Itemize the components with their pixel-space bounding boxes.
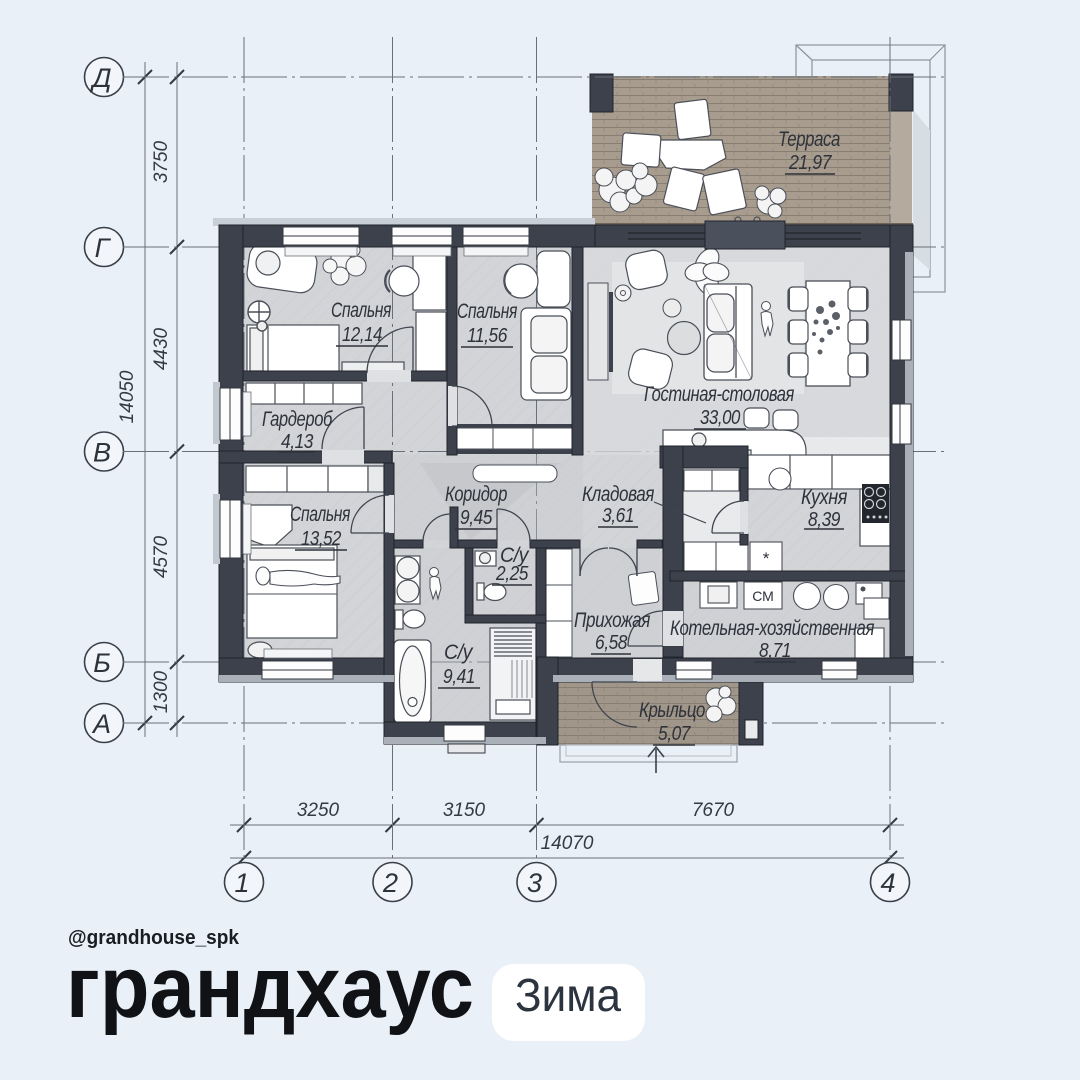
svg-text:33,00: 33,00 <box>700 407 740 429</box>
svg-text:8,71: 8,71 <box>759 640 791 662</box>
svg-text:3750: 3750 <box>151 140 172 183</box>
svg-text:Спальня: Спальня <box>290 503 350 526</box>
svg-text:14050: 14050 <box>117 370 138 423</box>
svg-text:Спальня: Спальня <box>331 299 391 322</box>
svg-text:9,41: 9,41 <box>443 666 475 688</box>
svg-text:1300: 1300 <box>151 670 172 713</box>
svg-text:Зима: Зима <box>515 969 621 1021</box>
svg-text:12,14: 12,14 <box>342 324 382 346</box>
svg-text:С/у: С/у <box>444 641 474 664</box>
svg-text:грандхаус: грандхаус <box>66 939 474 1036</box>
svg-text:11,56: 11,56 <box>467 325 508 347</box>
svg-text:8,39: 8,39 <box>808 509 840 531</box>
svg-text:3250: 3250 <box>297 800 340 821</box>
svg-text:4430: 4430 <box>151 327 172 370</box>
svg-text:2: 2 <box>382 868 398 898</box>
svg-text:4570: 4570 <box>151 535 172 578</box>
svg-text:Терраса: Терраса <box>778 128 840 151</box>
svg-text:Прихожая: Прихожая <box>574 609 650 632</box>
svg-text:*: * <box>763 549 770 568</box>
svg-text:Г: Г <box>95 233 112 263</box>
svg-text:1: 1 <box>234 868 249 898</box>
svg-text:Котельная-хозяйственная: Котельная-хозяйственная <box>670 617 874 640</box>
svg-text:Б: Б <box>93 648 111 678</box>
svg-text:13,52: 13,52 <box>301 528 341 550</box>
svg-text:3150: 3150 <box>443 800 486 821</box>
svg-text:2,25: 2,25 <box>495 563 529 585</box>
svg-text:Кухня: Кухня <box>801 486 847 509</box>
svg-text:5,07: 5,07 <box>658 723 691 745</box>
svg-text:Гардероб: Гардероб <box>262 408 333 431</box>
svg-text:9,45: 9,45 <box>460 507 493 529</box>
svg-text:7670: 7670 <box>692 800 735 821</box>
svg-text:6,58: 6,58 <box>595 632 627 654</box>
svg-text:Спальня: Спальня <box>457 300 517 323</box>
svg-text:Кладовая: Кладовая <box>582 483 654 506</box>
svg-text:Д: Д <box>89 63 111 93</box>
svg-text:Коридор: Коридор <box>445 483 507 506</box>
svg-text:А: А <box>91 709 111 739</box>
svg-text:4: 4 <box>880 868 895 898</box>
svg-text:14070: 14070 <box>541 833 594 854</box>
svg-text:Крыльцо: Крыльцо <box>639 699 706 722</box>
svg-text:СМ: СМ <box>752 588 774 604</box>
svg-text:3,61: 3,61 <box>602 505 634 527</box>
svg-text:Гостиная-столовая: Гостиная-столовая <box>644 383 794 406</box>
svg-text:В: В <box>93 438 111 468</box>
svg-text:4,13: 4,13 <box>281 431 313 453</box>
svg-text:3: 3 <box>527 868 542 898</box>
svg-text:21,97: 21,97 <box>788 152 832 174</box>
